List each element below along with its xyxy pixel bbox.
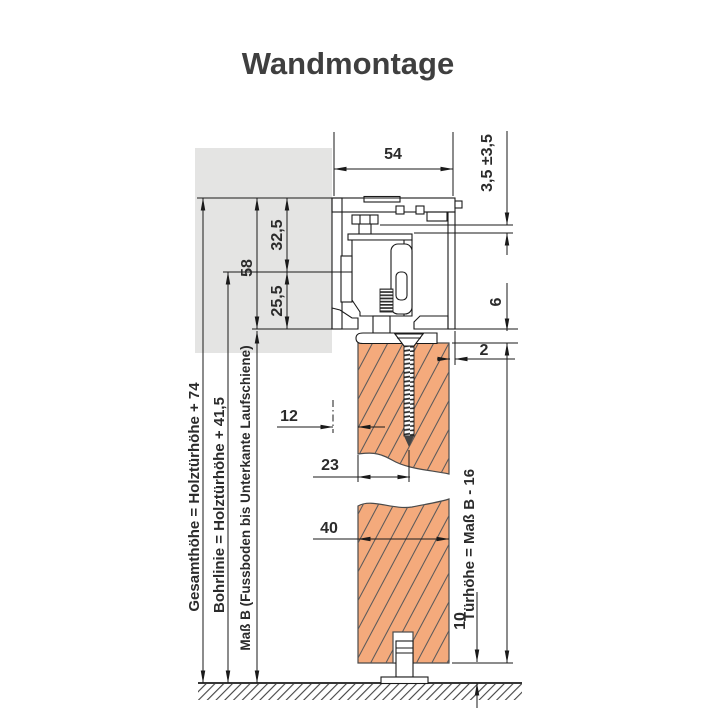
label-mass-b: Maß B (Fussboden bis Unterkante Laufschi… (238, 345, 253, 650)
track-screw-channel (396, 206, 404, 214)
hanger-plate (373, 316, 390, 333)
label-2: 2 (480, 342, 489, 359)
label-58: 58 (239, 259, 256, 277)
door-upper-hatch (358, 343, 449, 474)
label-35: 3,5 ±3,5 (479, 134, 496, 192)
label-40: 40 (320, 520, 338, 537)
technical-drawing-page: Wandmontage (0, 0, 713, 713)
wall-mount-diagram: Wandmontage (0, 0, 713, 713)
screw-thread (404, 346, 414, 436)
label-255: 25,5 (269, 285, 286, 316)
carriage-clamp (341, 256, 352, 302)
floor-hatch (198, 684, 522, 700)
label-23: 23 (321, 457, 339, 474)
track-screw-channel (416, 206, 424, 214)
label-tuerhoehe: Türhöhe = Maß B - 16 (461, 469, 478, 621)
label-12: 12 (280, 408, 298, 425)
floor-guide-base (381, 677, 428, 684)
label-bohrlinie: Bohrlinie = Holztürhöhe + 41,5 (211, 397, 228, 613)
label-gesamthoehe: Gesamthöhe = Holztürhöhe + 74 (186, 382, 203, 612)
track-outer-wall (448, 212, 455, 329)
carriage-top-plate (348, 234, 412, 240)
adjustment-spring (380, 289, 393, 312)
hanger-bolt-head (352, 215, 378, 224)
floor (198, 683, 522, 700)
track-top-channel (364, 197, 400, 203)
label-54: 54 (384, 146, 402, 163)
wall-section (195, 148, 332, 353)
track-clip-hook (455, 201, 462, 208)
page-title: Wandmontage (242, 46, 454, 81)
door-panel (358, 343, 449, 663)
label-6: 6 (488, 297, 505, 306)
floor-guide-pin (396, 641, 413, 677)
roller-hub (396, 272, 407, 300)
label-325: 32,5 (269, 219, 286, 250)
